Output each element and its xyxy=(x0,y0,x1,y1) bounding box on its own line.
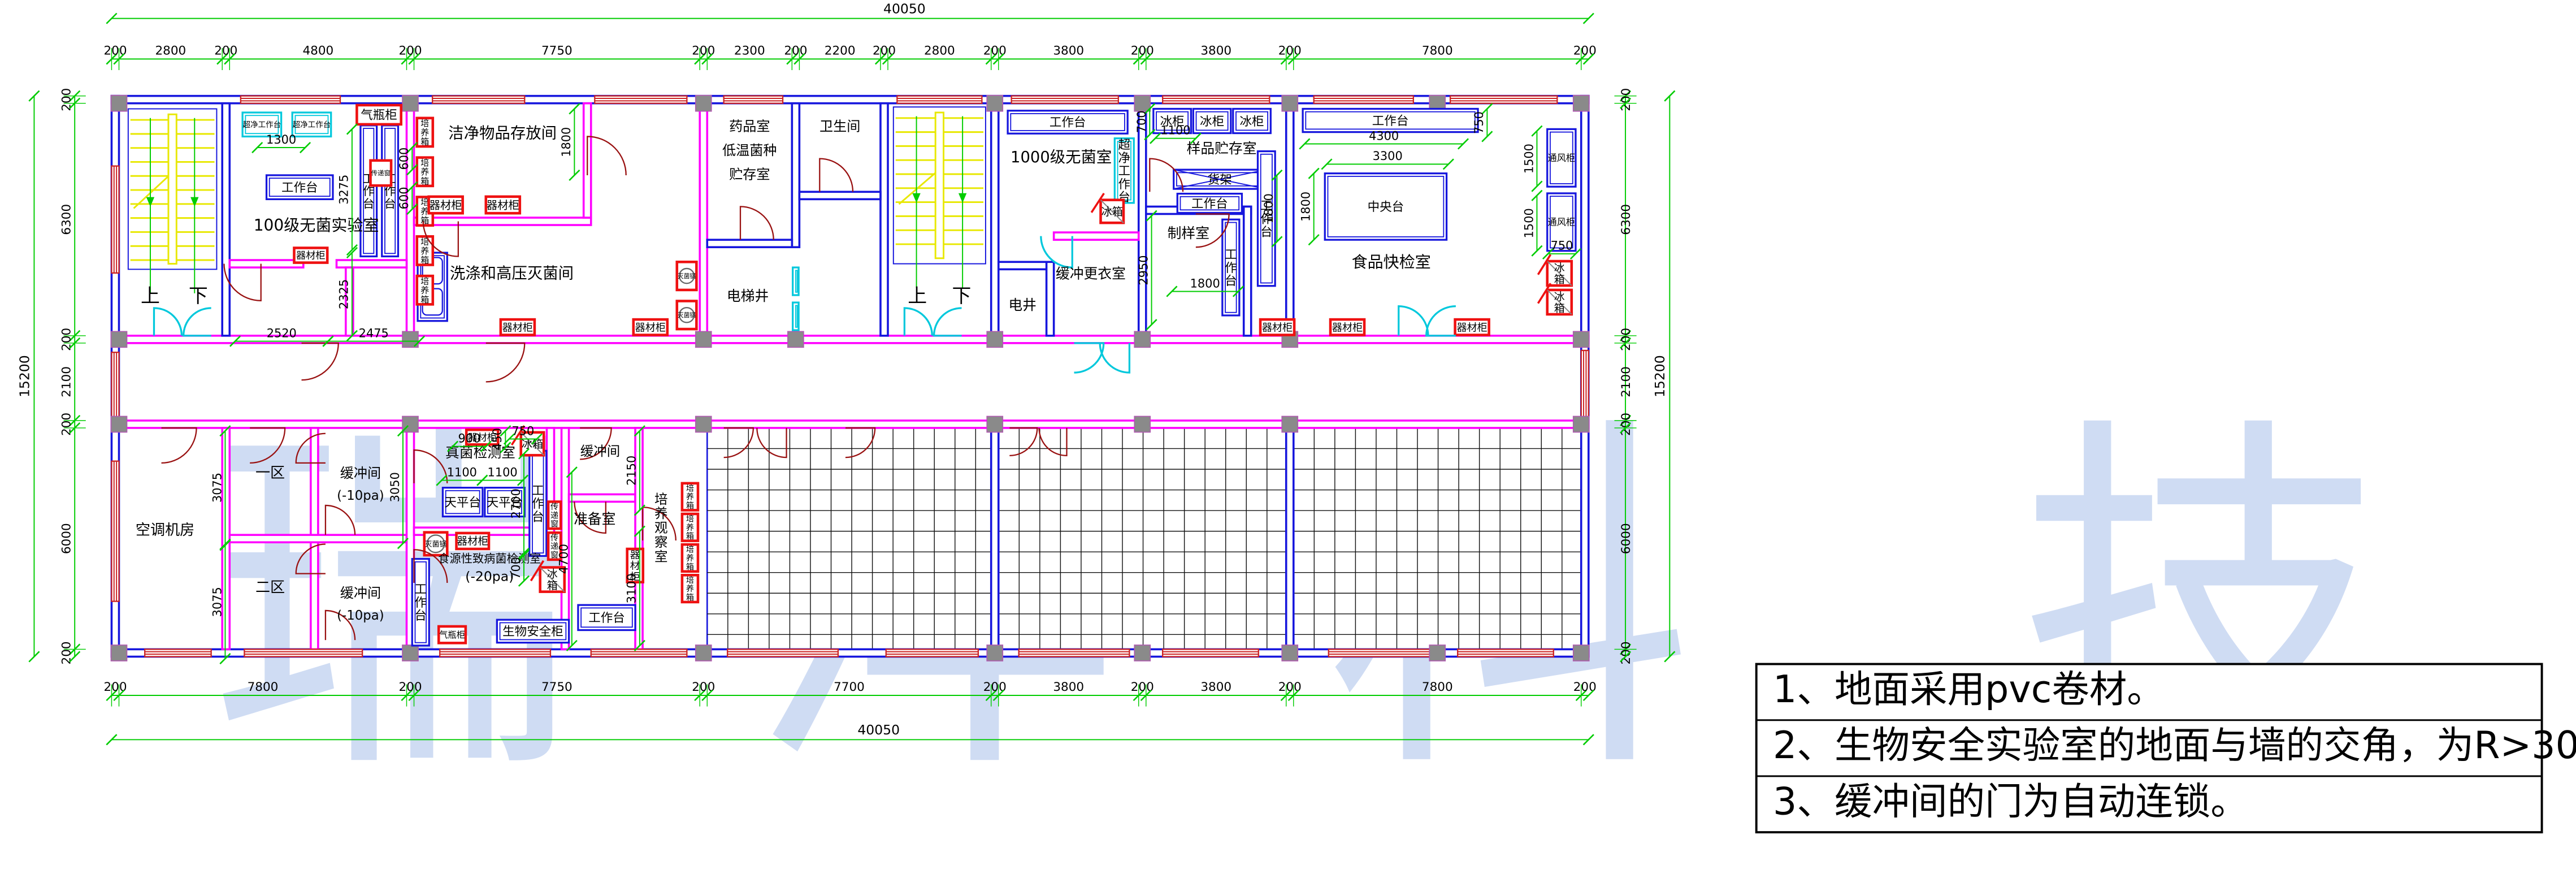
structural-column xyxy=(1429,645,1445,661)
furniture-label: 器材柜 xyxy=(430,198,462,211)
dim-chain-text: 4800 xyxy=(302,44,333,58)
furniture-label: 工作台 xyxy=(1372,114,1409,128)
furniture-label: 灭菌锅 xyxy=(678,312,696,319)
red-cabinet: 气瓶柜 xyxy=(439,626,466,643)
furniture-label: 器材柜 xyxy=(502,322,533,334)
cad-viewer: 瑞洋科技超净工作台超净工作台超净工作台工作台工作台工作台工作台冰柜冰柜冰柜货架工… xyxy=(0,0,2576,878)
window xyxy=(897,96,982,103)
red-cabinet: 冰箱 xyxy=(1538,254,1571,286)
blue-bench: 工作台 xyxy=(1303,109,1478,132)
furniture-label: 箱 xyxy=(686,501,694,511)
furniture-label: 养 xyxy=(686,585,694,594)
blue-bench: 工作台 xyxy=(1177,194,1242,213)
tiled-floor-area xyxy=(999,428,1286,650)
structural-column xyxy=(987,416,1003,432)
furniture-label: 工作台 xyxy=(1191,197,1228,211)
furniture-label: 箱 xyxy=(420,295,429,305)
dim-chain-text: 200 xyxy=(1278,44,1302,58)
furniture-label: 超净工作台 xyxy=(293,120,331,129)
furniture-label: 冰箱 xyxy=(1101,205,1123,218)
furniture-label: 培 xyxy=(686,515,694,524)
room-label: 空调机房 xyxy=(136,522,194,539)
furniture-label: 培 xyxy=(686,484,694,493)
dim-text: 2325 xyxy=(337,279,351,309)
dim-text: 3075 xyxy=(210,587,224,617)
room-label: 室 xyxy=(654,548,668,564)
room-label: 电井 xyxy=(1008,297,1037,313)
cyan-bench: 超净工作台 xyxy=(292,113,331,136)
wall xyxy=(336,260,406,267)
furniture-label: 养 xyxy=(420,286,429,296)
dim-chain-text: 200 xyxy=(784,44,807,58)
furniture-label: 工作台 xyxy=(1050,116,1086,130)
furniture-label: 工作台 xyxy=(281,181,318,195)
furniture-label: 冰 xyxy=(547,568,558,581)
structural-column xyxy=(788,331,804,347)
furniture-label: 器材柜 xyxy=(487,198,519,211)
window xyxy=(1163,96,1269,103)
dim-chain-text: 200 xyxy=(59,328,73,351)
room-label: 洗涤和高压灭菌间 xyxy=(450,265,574,283)
structural-column xyxy=(111,96,127,111)
stair-arrow-head xyxy=(146,197,154,207)
note-text: 2、生物安全实验室的地面与墙的交角，为R>30mm的圆角。 xyxy=(1773,723,2576,767)
room-label: (-20pa) xyxy=(465,569,514,585)
furniture-label: 窗 xyxy=(550,520,558,529)
dim-text: 450 xyxy=(491,428,504,451)
red-cabinet: 传递窗 xyxy=(548,501,561,529)
double-door-leaf xyxy=(184,308,211,336)
window xyxy=(724,96,783,103)
furniture-label: 材 xyxy=(630,560,640,572)
dim-chain-text: 200 xyxy=(214,44,237,58)
window xyxy=(1163,649,1259,656)
room-label: 电梯井 xyxy=(727,288,769,304)
structural-column xyxy=(1134,416,1150,432)
dim-chain-text: 6000 xyxy=(59,523,73,554)
structural-column xyxy=(987,645,1003,661)
cyan-bench xyxy=(793,267,799,295)
furniture-label: 递 xyxy=(550,511,558,520)
window xyxy=(595,96,687,103)
room-label: 洁净物品存放间 xyxy=(448,125,557,142)
furniture-label: 作 xyxy=(532,497,544,511)
floor-plan-canvas: 瑞洋科技超净工作台超净工作台超净工作台工作台工作台工作台工作台冰柜冰柜冰柜货架工… xyxy=(0,0,2576,878)
furniture-label: 气瓶柜 xyxy=(439,630,465,640)
furniture-label: 传 xyxy=(550,534,558,543)
dim-total-text: 15200 xyxy=(16,355,32,397)
red-cabinet: 灭菌锅 xyxy=(424,533,447,555)
blue-bench: 天平台 xyxy=(443,488,482,517)
red-cabinet: 器材柜 xyxy=(1455,319,1489,335)
structural-column xyxy=(696,645,712,661)
furniture-label: 工 xyxy=(1118,165,1131,179)
wall xyxy=(1244,206,1251,335)
furniture-label: 工 xyxy=(415,583,427,597)
room-label: 样品贮存室 xyxy=(1187,140,1257,157)
structural-column xyxy=(1134,331,1150,347)
dim-text: 1100 xyxy=(1160,124,1190,137)
window xyxy=(111,352,119,417)
dim-text: 750 xyxy=(1472,111,1486,134)
notes-box-layer: 1、地面采用pvc卷材。2、生物安全实验室的地面与墙的交角，为R>30mm的圆角… xyxy=(1757,664,2576,833)
furniture-label: 台 xyxy=(363,197,375,210)
red-cabinet: 培养箱 xyxy=(417,276,433,305)
structural-column xyxy=(1282,96,1298,111)
red-cabinet: 冰箱 xyxy=(1538,283,1571,314)
structural-column xyxy=(987,331,1003,347)
red-cabinet: 器材柜 xyxy=(501,319,535,335)
double-door-leaf xyxy=(934,308,962,336)
wall xyxy=(406,103,414,336)
dim-total-text: 15200 xyxy=(1652,355,1668,397)
stair-stringer xyxy=(168,114,176,263)
window xyxy=(727,649,838,656)
room-label: 上 xyxy=(141,286,160,308)
furniture-label: 器材柜 xyxy=(635,322,666,334)
dim-text: 900 xyxy=(458,431,480,445)
structural-column xyxy=(1134,96,1150,111)
blue-bench: 货架 xyxy=(1174,170,1266,189)
dim-text: 2520 xyxy=(267,326,297,340)
note-text: 3、缓冲间的门为自动连锁。 xyxy=(1773,779,2248,823)
dim-chain-text: 7750 xyxy=(541,680,573,694)
furniture-label: 冰 xyxy=(1554,291,1565,303)
window xyxy=(1458,649,1554,656)
window xyxy=(145,649,211,656)
stair-arrow-head xyxy=(190,197,198,207)
furniture-label: 台 xyxy=(415,609,427,623)
furniture-label: 灭菌锅 xyxy=(425,539,447,548)
window xyxy=(1581,351,1589,417)
dim-chain-text: 200 xyxy=(692,44,715,58)
furniture-label: 培 xyxy=(420,276,429,286)
red-cabinet: 培养箱 xyxy=(682,544,698,572)
wall xyxy=(792,103,799,247)
wall xyxy=(991,428,999,650)
dim-chain-text: 6300 xyxy=(59,204,73,235)
furniture-label: 生物安全柜 xyxy=(502,625,563,639)
red-cabinet: 传递窗 xyxy=(371,161,392,185)
wall xyxy=(1139,103,1146,336)
dim-chain-text: 7800 xyxy=(1422,680,1453,694)
cyan-bench xyxy=(793,302,799,330)
room-label: 食品快检室 xyxy=(1352,253,1431,271)
wall xyxy=(991,103,999,336)
dim-text: 2475 xyxy=(359,326,389,340)
furniture-label: 箱 xyxy=(420,176,429,186)
room-label: 缓冲间 xyxy=(340,585,381,601)
furniture-label: 养 xyxy=(686,554,694,563)
furniture-label: 培 xyxy=(420,118,429,128)
dim-text: 700 xyxy=(509,557,523,579)
dim-chain-text: 3800 xyxy=(1053,680,1084,694)
wall xyxy=(707,240,792,247)
dim-chain-text: 200 xyxy=(1573,44,1597,58)
structural-column xyxy=(1573,645,1589,661)
dim-text: 1500 xyxy=(1522,208,1536,238)
furniture-label: 器材柜 xyxy=(1262,322,1293,334)
door-swing xyxy=(302,343,339,380)
room-label: 1000级无菌室 xyxy=(1011,149,1112,166)
red-cabinet: 灭菌锅 xyxy=(677,301,697,329)
dim-text: 600 xyxy=(397,148,411,170)
red-cabinet: 灭菌锅 xyxy=(677,262,697,290)
furniture-label: 箱 xyxy=(686,563,694,572)
red-cabinet: 器材柜 xyxy=(486,197,520,213)
dim-chain-text: 2300 xyxy=(734,44,765,58)
dim-chain-text: 2200 xyxy=(825,44,856,58)
blue-bench: 冰柜 xyxy=(1233,109,1271,133)
furniture-label: 器材柜 xyxy=(1456,322,1487,334)
room-label: 药品室 xyxy=(729,119,770,135)
window xyxy=(886,649,978,656)
dim-chain-text: 2800 xyxy=(155,44,186,58)
dim-text: 1800 xyxy=(560,127,573,157)
structural-column xyxy=(696,96,712,111)
furniture-label: 器 xyxy=(630,549,640,561)
window xyxy=(1314,96,1413,103)
door-swing xyxy=(486,343,525,382)
blue-bench: 工作台 xyxy=(1222,219,1239,315)
dim-chain-text: 200 xyxy=(103,44,127,58)
note-text: 1、地面采用pvc卷材。 xyxy=(1773,667,2165,711)
room-label: 养 xyxy=(654,505,668,521)
dim-text: 1500 xyxy=(1522,144,1536,174)
dim-chain-text: 200 xyxy=(398,44,422,58)
dim-text: 600 xyxy=(397,187,411,209)
dim-text: 1800 xyxy=(1262,193,1276,223)
room-label: 缓冲间 xyxy=(580,443,620,459)
window xyxy=(591,649,687,656)
furniture-label: 台 xyxy=(1260,226,1273,240)
red-cabinet: 器材柜 xyxy=(429,197,463,213)
room-label: 准备室 xyxy=(574,511,615,527)
red-cabinet: 培养箱 xyxy=(682,575,698,602)
blue-bench: 中央台 xyxy=(1325,174,1446,240)
furniture-label: 培 xyxy=(420,158,429,168)
furniture-label: 货架 xyxy=(1208,173,1232,187)
wall xyxy=(1054,232,1139,240)
furniture-label: 超 xyxy=(1118,138,1131,152)
stair-stringer xyxy=(935,113,943,258)
red-cabinet: 培养箱 xyxy=(417,118,433,147)
furniture-label: 箱 xyxy=(420,255,429,265)
dim-text: 3100 xyxy=(625,573,639,603)
wall xyxy=(799,192,881,199)
room-label: 100级无菌实验室 xyxy=(254,216,379,235)
furniture-label: 灭菌锅 xyxy=(678,273,696,280)
wall xyxy=(569,494,635,501)
dim-chain-text: 6300 xyxy=(1619,204,1633,235)
dim-text: 1300 xyxy=(266,133,296,146)
furniture-label: 作 xyxy=(415,596,427,610)
room-label: (-10pa) xyxy=(337,488,384,503)
structural-column xyxy=(1573,416,1589,432)
furniture-label: 养 xyxy=(686,524,694,533)
furniture-label: 冰柜 xyxy=(1240,115,1264,129)
room-label: 察 xyxy=(654,534,668,550)
furniture-label: 养 xyxy=(420,246,429,256)
floor-grid-layer xyxy=(707,428,1581,650)
wall xyxy=(562,428,569,650)
dim-text: 2150 xyxy=(625,456,639,486)
window xyxy=(111,166,119,273)
dim-chain-text: 200 xyxy=(1131,44,1154,58)
dim-text: 2700 xyxy=(509,488,523,518)
window xyxy=(111,461,119,602)
furniture-label: 养 xyxy=(420,167,429,177)
dim-chain-text: 2100 xyxy=(59,366,73,397)
dim-text: 3275 xyxy=(337,175,351,205)
structural-column xyxy=(402,96,418,111)
blue-bench: 工作台 xyxy=(267,175,333,199)
structural-column xyxy=(111,645,127,661)
dim-text: 1800 xyxy=(1299,192,1312,222)
tiled-floor-area xyxy=(707,428,991,650)
blue-bench: 生物安全柜 xyxy=(497,620,569,642)
wall xyxy=(229,535,406,542)
furniture-label: 台 xyxy=(1225,274,1237,288)
structural-column xyxy=(1573,331,1589,347)
red-cabinet: 培养箱 xyxy=(682,483,698,511)
dim-chain-text: 7700 xyxy=(834,680,865,694)
double-door-leaf xyxy=(1074,343,1104,373)
window xyxy=(432,96,524,103)
furniture-label: 作 xyxy=(1118,178,1131,192)
door-swing xyxy=(740,206,774,240)
structural-column xyxy=(696,416,712,432)
structural-column xyxy=(1282,416,1298,432)
furniture-label: 培 xyxy=(686,576,694,585)
wall xyxy=(414,218,591,225)
structural-column xyxy=(111,331,127,347)
blue-bench: 工作台 xyxy=(382,126,398,257)
furniture-label: 作 xyxy=(1225,261,1237,275)
window xyxy=(241,96,340,103)
room-label: 低温菌种 xyxy=(722,142,777,158)
red-cabinet: 器材柜 xyxy=(457,533,489,549)
structural-column xyxy=(1134,645,1150,661)
room-label: 下 xyxy=(952,286,972,308)
double-door-leaf xyxy=(1399,306,1428,336)
red-cabinet: 培养箱 xyxy=(417,158,433,187)
door-swing xyxy=(587,136,626,175)
furniture-label: 工 xyxy=(532,484,544,498)
dim-chain-text: 200 xyxy=(398,680,422,694)
dim-chain-text: 200 xyxy=(1131,680,1154,694)
blue-bench: 工作台 xyxy=(412,559,429,646)
window xyxy=(1019,649,1130,656)
dim-text: 750 xyxy=(511,424,534,438)
window xyxy=(1450,96,1557,103)
furniture-label: 养 xyxy=(686,493,694,502)
red-cabinet: 培养箱 xyxy=(417,236,433,265)
dim-chain-text: 200 xyxy=(873,44,896,58)
blue-bench: 工作台 xyxy=(361,126,377,257)
dim-chain-text: 3800 xyxy=(1053,44,1084,58)
structural-column xyxy=(402,645,418,661)
furniture-label: 通风柜 xyxy=(1548,217,1576,228)
double-door-leaf xyxy=(1426,306,1456,336)
dim-chain-text: 3800 xyxy=(1200,680,1231,694)
dim-text: 3050 xyxy=(388,472,402,502)
dim-text: 4700 xyxy=(557,544,571,574)
window xyxy=(1012,96,1118,103)
wall xyxy=(881,103,888,336)
blue-bench: 工作台 xyxy=(578,605,635,630)
tiled-floor-area xyxy=(1294,428,1581,650)
dim-text: 3075 xyxy=(210,473,224,503)
dim-total-text: 40050 xyxy=(883,1,926,16)
red-cabinet: 气瓶柜 xyxy=(357,105,401,124)
room-label: 贮存室 xyxy=(729,166,770,182)
furniture-label: 净 xyxy=(1118,151,1131,165)
dim-chain-text: 6000 xyxy=(1619,523,1633,554)
room-label: 培 xyxy=(654,491,668,507)
furniture-label: 气瓶柜 xyxy=(361,109,397,123)
structural-column xyxy=(111,416,127,432)
room-label: 缓冲间 xyxy=(340,465,381,481)
structural-column xyxy=(696,331,712,347)
dim-text: 1100 xyxy=(447,465,477,479)
double-door-leaf xyxy=(1100,343,1129,373)
dim-chain-text: 7750 xyxy=(541,44,573,58)
furniture-label: 工作台 xyxy=(588,611,625,625)
wall xyxy=(222,103,229,336)
dim-chain-text: 7800 xyxy=(1422,44,1453,58)
room-label: (-10pa) xyxy=(337,608,384,623)
red-cabinet: 器材柜 xyxy=(294,248,327,262)
furniture-label: 工 xyxy=(1225,248,1237,262)
dim-total-text: 40050 xyxy=(857,722,900,738)
furniture-label: 传递窗 xyxy=(371,169,391,177)
room-label: 观 xyxy=(654,520,668,536)
room-label: 二区 xyxy=(255,579,285,596)
furniture-label: 台 xyxy=(532,510,544,524)
furniture-label: 箱 xyxy=(420,215,429,226)
wall xyxy=(229,260,303,267)
red-cabinet: 培养箱 xyxy=(682,514,698,541)
furniture-label: 中央台 xyxy=(1368,200,1404,214)
wall xyxy=(700,103,707,336)
dim-text: 1800 xyxy=(1190,276,1220,290)
furniture-label: 养 xyxy=(420,127,429,137)
red-cabinet: 器材柜 xyxy=(1330,319,1364,335)
furniture-label: 培 xyxy=(686,546,694,555)
furniture-label: 箱 xyxy=(547,579,558,592)
blue-bench: 通风柜 xyxy=(1547,129,1576,187)
room-label: 卫生间 xyxy=(819,119,860,135)
furniture-label: 箱 xyxy=(1554,302,1565,314)
wall xyxy=(1047,262,1054,336)
door-swing xyxy=(162,428,197,463)
dim-chain-text: 200 xyxy=(59,641,73,664)
room-label: 上 xyxy=(908,286,927,308)
room-label: 制样室 xyxy=(1168,225,1209,241)
cyan-bench: 超净工作台 xyxy=(1114,138,1134,205)
double-door-leaf xyxy=(154,308,181,336)
dim-text: 700 xyxy=(1135,110,1148,133)
furniture-label: 传 xyxy=(550,503,558,512)
dim-chain-text: 200 xyxy=(983,680,1007,694)
furniture-label: 冰 xyxy=(1554,262,1565,274)
furniture-label: 超净工作台 xyxy=(242,120,281,129)
blue-bench: 冰柜 xyxy=(1193,109,1231,133)
dim-chain-text: 200 xyxy=(103,680,127,694)
structural-column xyxy=(1573,96,1589,111)
room-label: 缓冲更衣室 xyxy=(1056,266,1126,282)
